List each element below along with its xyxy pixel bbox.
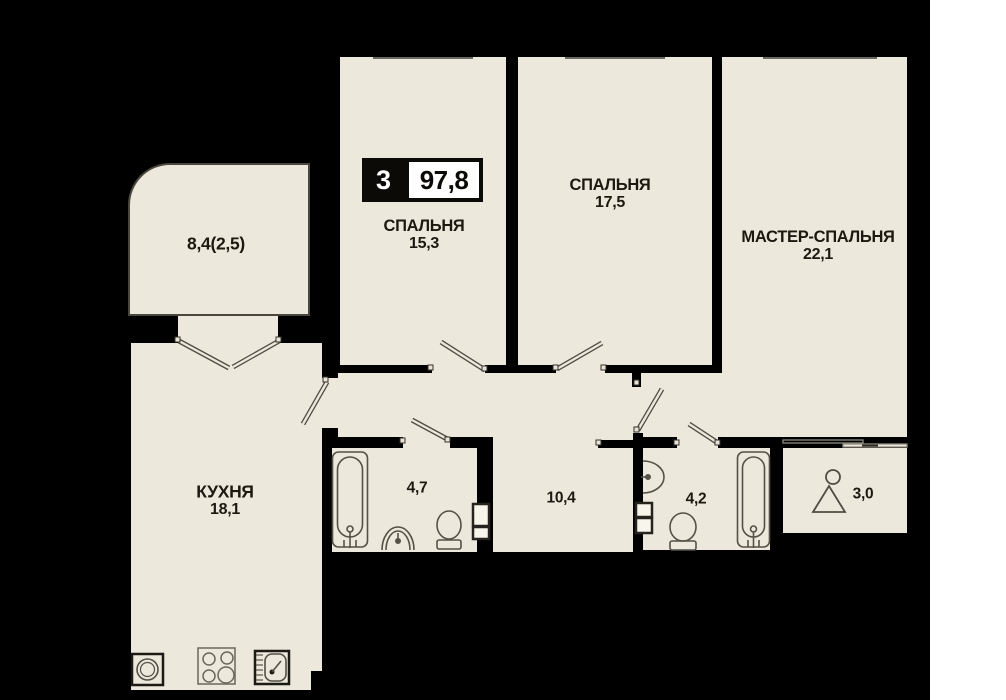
- floor-plan: 3 97,8 8,4(2,5) СПАЛЬНЯ 15,3 СПАЛЬНЯ 17,…: [0, 0, 1006, 700]
- kitchen-area-label: 18,1: [210, 502, 240, 518]
- bedroom1-name-label: СПАЛЬНЯ: [383, 218, 464, 235]
- room-bedroom1: [340, 57, 506, 365]
- balcony-area-label: 8,4(2,5): [187, 235, 245, 253]
- bathroom2-door-opening: [677, 437, 718, 448]
- kitchen-name-label: КУХНЯ: [196, 483, 253, 501]
- master-area-label: 22,1: [803, 247, 833, 263]
- kitchen-door-opening: [322, 378, 338, 428]
- bedroom1-door-opening: [432, 365, 485, 373]
- balcony-door-opening: [178, 316, 278, 343]
- room-bathroom1: [332, 448, 477, 552]
- bedroom2-name-label: СПАЛЬНЯ: [569, 177, 650, 194]
- wall-stub-junction: [633, 433, 643, 437]
- hallway-area-label: 10,4: [547, 490, 576, 506]
- badge-total-area: 97,8: [405, 158, 483, 202]
- wall-stub-vestibule: [632, 373, 641, 387]
- bathroom2-area-label: 4,2: [686, 491, 707, 507]
- badge-room-count: 3: [362, 158, 405, 202]
- bedroom1-area-label: 15,3: [409, 236, 439, 252]
- wardrobe-area-label: 3,0: [853, 486, 874, 502]
- unit-badge: 3 97,8: [362, 158, 483, 202]
- room-wardrobe: [783, 448, 907, 533]
- bedroom2-door-opening: [556, 365, 605, 373]
- wall-stub-corridor: [598, 440, 633, 448]
- room-bedroom2: [518, 57, 712, 365]
- bathroom1-area-label: 4,7: [407, 480, 428, 496]
- hallway-band: [338, 373, 722, 437]
- master-name-label: МАСТЕР-СПАЛЬНЯ: [741, 229, 894, 246]
- bathroom1-door-opening: [403, 437, 450, 448]
- bedroom2-area-label: 17,5: [595, 195, 625, 211]
- wall-notch-kitchen: [311, 671, 322, 690]
- room-bathroom2: [643, 448, 770, 550]
